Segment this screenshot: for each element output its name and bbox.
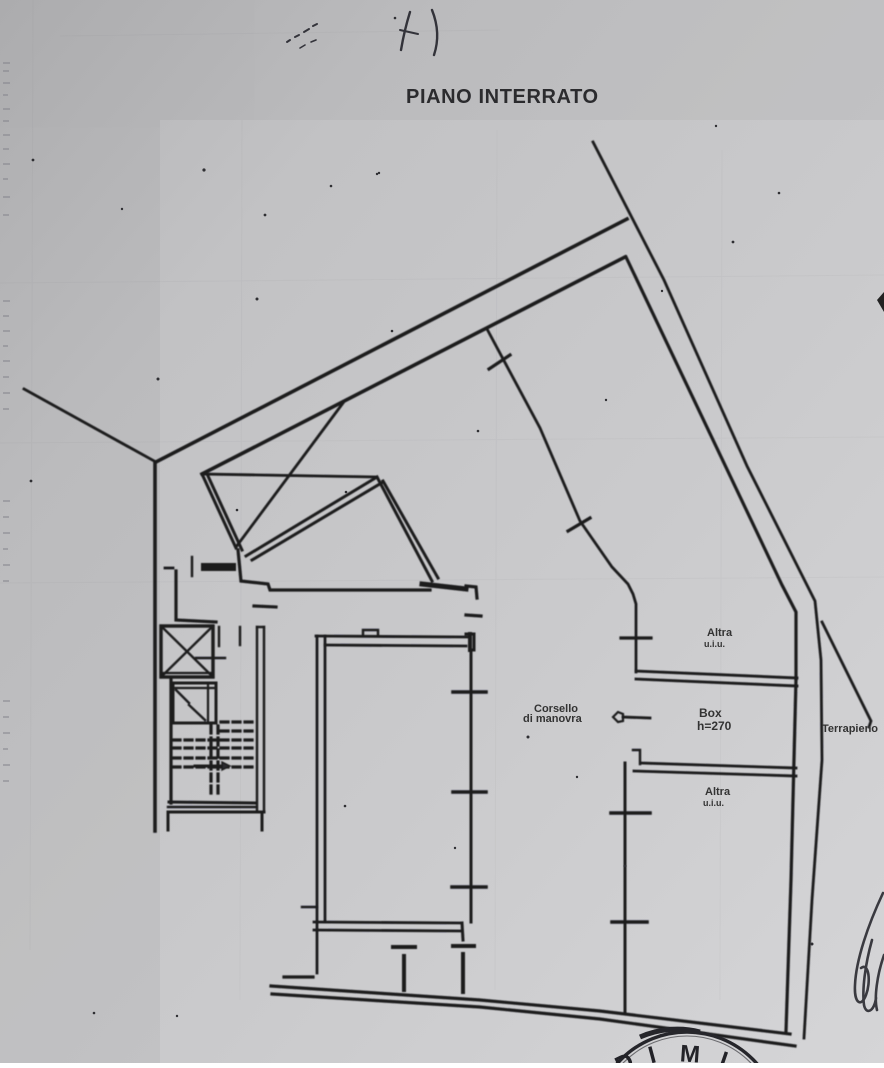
svg-text:u.i.u.: u.i.u.: [704, 639, 725, 649]
svg-text:M: M: [679, 1040, 701, 1063]
svg-text:di manovra: di manovra: [523, 713, 583, 725]
svg-text:PIANO INTERRATO: PIANO INTERRATO: [406, 86, 599, 108]
svg-text:Altra: Altra: [705, 786, 731, 798]
svg-text:u.i.u.: u.i.u.: [703, 798, 724, 808]
svg-text:Terrapieno: Terrapieno: [822, 723, 878, 735]
svg-text:h=270: h=270: [697, 719, 732, 733]
svg-text:Altra: Altra: [707, 627, 733, 639]
svg-text:Box: Box: [699, 706, 722, 720]
